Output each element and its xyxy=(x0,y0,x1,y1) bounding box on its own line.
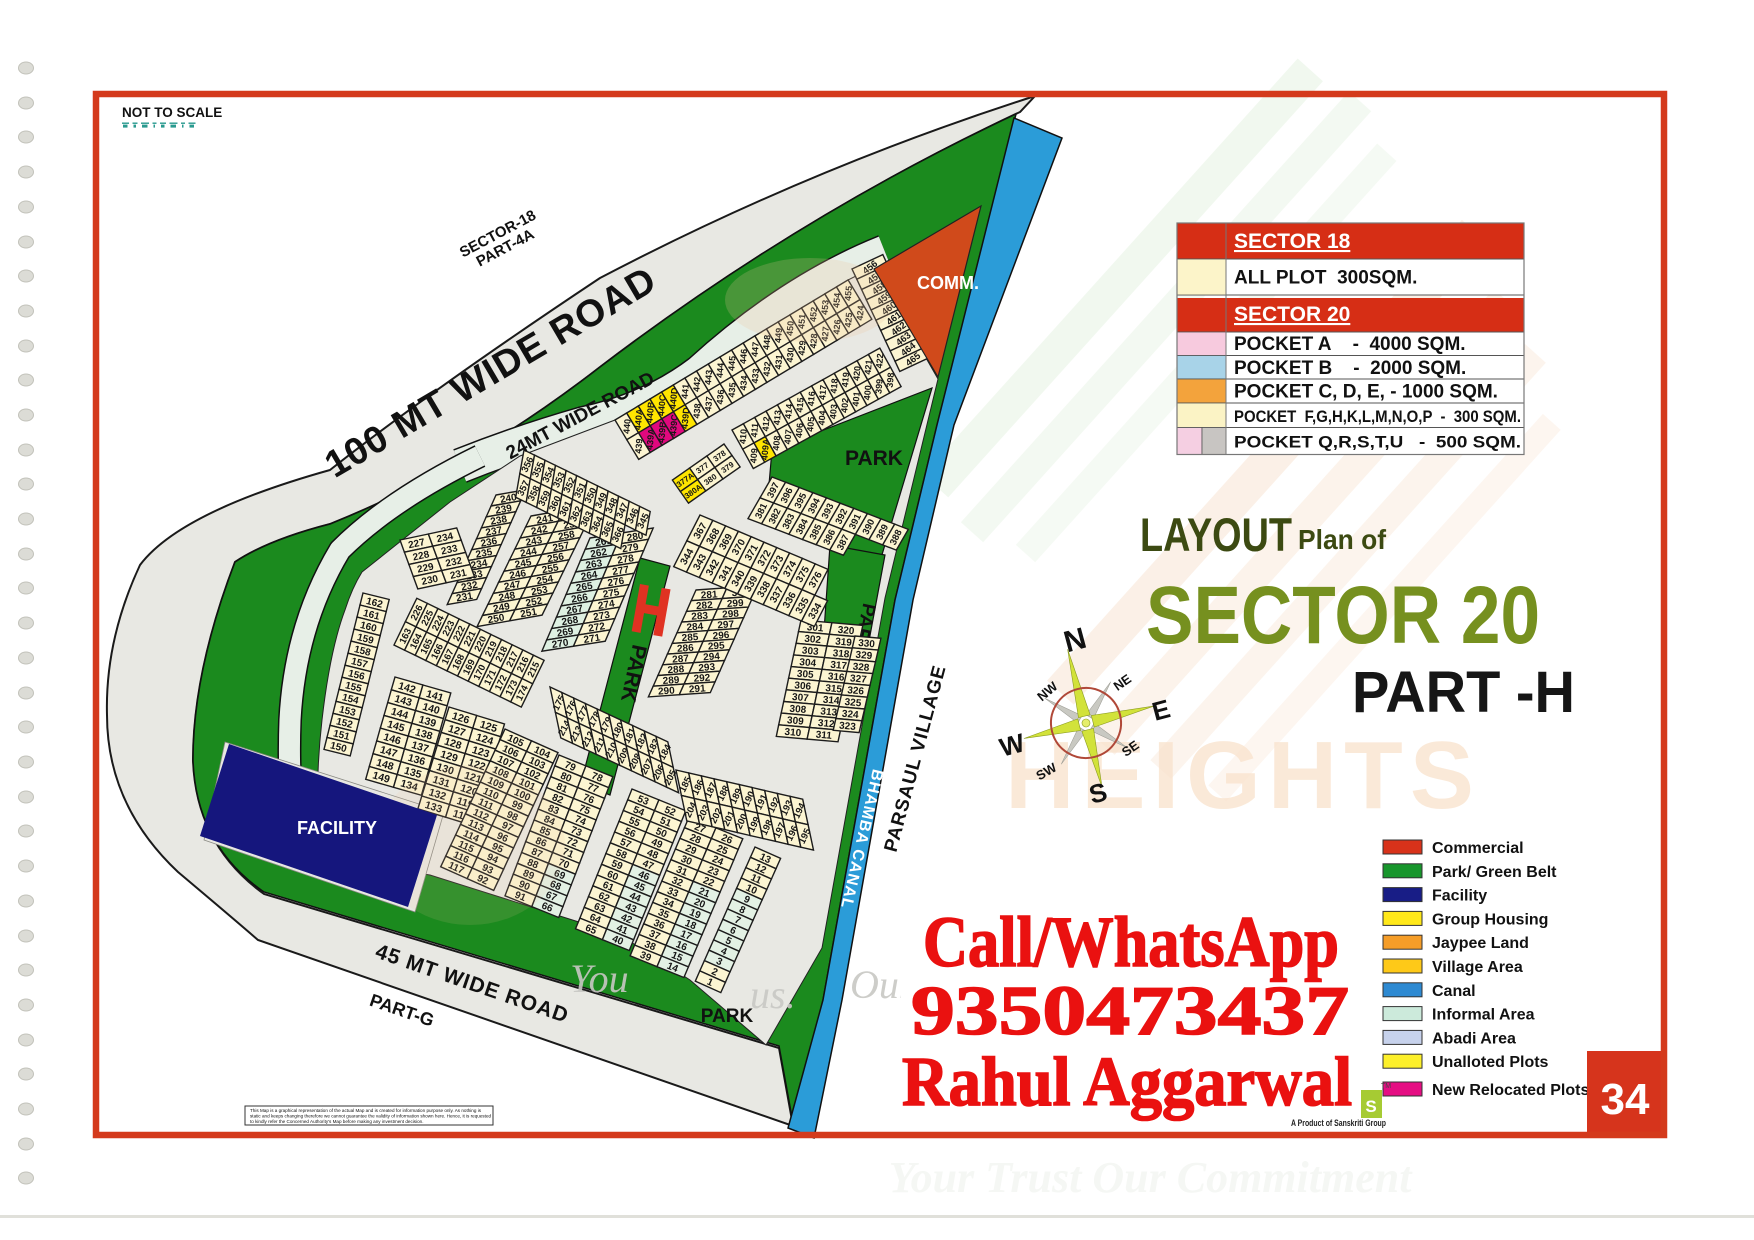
svg-text:us.: us. xyxy=(750,972,796,1017)
svg-text:Group Housing: Group Housing xyxy=(1432,911,1548,928)
svg-text:291: 291 xyxy=(689,683,707,695)
svg-text:Informal Area: Informal Area xyxy=(1432,1007,1535,1024)
svg-text:Unalloted Plots: Unalloted Plots xyxy=(1432,1054,1549,1071)
svg-text:POCKET A - 4000 SQM.: POCKET A - 4000 SQM. xyxy=(1234,334,1466,355)
svg-text:POCKET C, D, E, - 1000 SQM.: POCKET C, D, E, - 1000 SQM. xyxy=(1234,382,1498,403)
svg-text:Your Trust Our Commitment: Your Trust Our Commitment xyxy=(889,1153,1414,1202)
svg-text:310: 310 xyxy=(784,727,802,739)
svg-text:A Product of Sanskriti Group: A Product of Sanskriti Group xyxy=(1291,1118,1386,1128)
svg-text:POCKET B - 2000 SQM.: POCKET B - 2000 SQM. xyxy=(1234,358,1466,379)
svg-text:34: 34 xyxy=(1601,1075,1650,1124)
svg-text:static and keeps changing ther: static and keeps changing therefore we c… xyxy=(250,1114,492,1119)
svg-text:ALL PLOT 300SQM.: ALL PLOT 300SQM. xyxy=(1234,268,1417,289)
svg-text:290: 290 xyxy=(658,685,676,697)
svg-text:SECTOR 18: SECTOR 18 xyxy=(1234,230,1351,253)
svg-text:Plan of: Plan of xyxy=(1298,524,1387,555)
svg-text:398: 398 xyxy=(885,372,896,388)
svg-text:422: 422 xyxy=(874,353,885,369)
svg-text:COMM.: COMM. xyxy=(917,273,979,293)
svg-text:POCKET F,G,H,K,L,M,N,O,P -: POCKET F,G,H,K,L,M,N,O,P - 300 SQM. xyxy=(1234,407,1521,426)
svg-text:SECTOR 20: SECTOR 20 xyxy=(1234,303,1350,326)
svg-text:LAYOUT: LAYOUT xyxy=(1140,508,1292,561)
svg-text:PARK: PARK xyxy=(845,447,903,470)
svg-text:SECTOR 20: SECTOR 20 xyxy=(1146,570,1540,661)
svg-text:Rahul Aggarwal: Rahul Aggarwal xyxy=(902,1044,1352,1121)
svg-text:Facility: Facility xyxy=(1432,888,1487,905)
svg-text:323: 323 xyxy=(839,720,857,732)
svg-text:S: S xyxy=(1365,1097,1376,1116)
svg-text:311: 311 xyxy=(815,730,832,742)
svg-text:Commercial: Commercial xyxy=(1432,840,1524,857)
svg-text:9350473437: 9350473437 xyxy=(911,973,1349,1050)
svg-text:Call/WhatsApp: Call/WhatsApp xyxy=(923,902,1339,982)
svg-text:TM: TM xyxy=(1381,1083,1391,1090)
svg-text:Canal: Canal xyxy=(1432,983,1476,1000)
svg-text:You: You xyxy=(570,956,629,1001)
svg-text:PARK: PARK xyxy=(701,1006,754,1027)
svg-text:to kindly refer the Concerned: to kindly refer the Concerned Authority'… xyxy=(250,1119,424,1124)
svg-text:Jaypee Land: Jaypee Land xyxy=(1432,935,1529,952)
svg-text:Park/ Green Belt: Park/ Green Belt xyxy=(1432,864,1557,881)
svg-text:POCKET Q,R,S,T,U - 500 SQM.: POCKET Q,R,S,T,U - 500 SQM. xyxy=(1234,433,1521,452)
svg-text:FACILITY: FACILITY xyxy=(297,818,377,838)
svg-text:PART -H: PART -H xyxy=(1352,660,1575,725)
svg-text:NOT TO SCALE: NOT TO SCALE xyxy=(122,105,222,120)
svg-text:New Relocated Plots: New Relocated Plots xyxy=(1432,1082,1589,1099)
svg-text:This Map is a graphical repres: This Map is a graphical representation o… xyxy=(250,1108,482,1113)
svg-text:Village Area: Village Area xyxy=(1432,959,1523,976)
svg-text:Abadi Area: Abadi Area xyxy=(1432,1030,1516,1047)
